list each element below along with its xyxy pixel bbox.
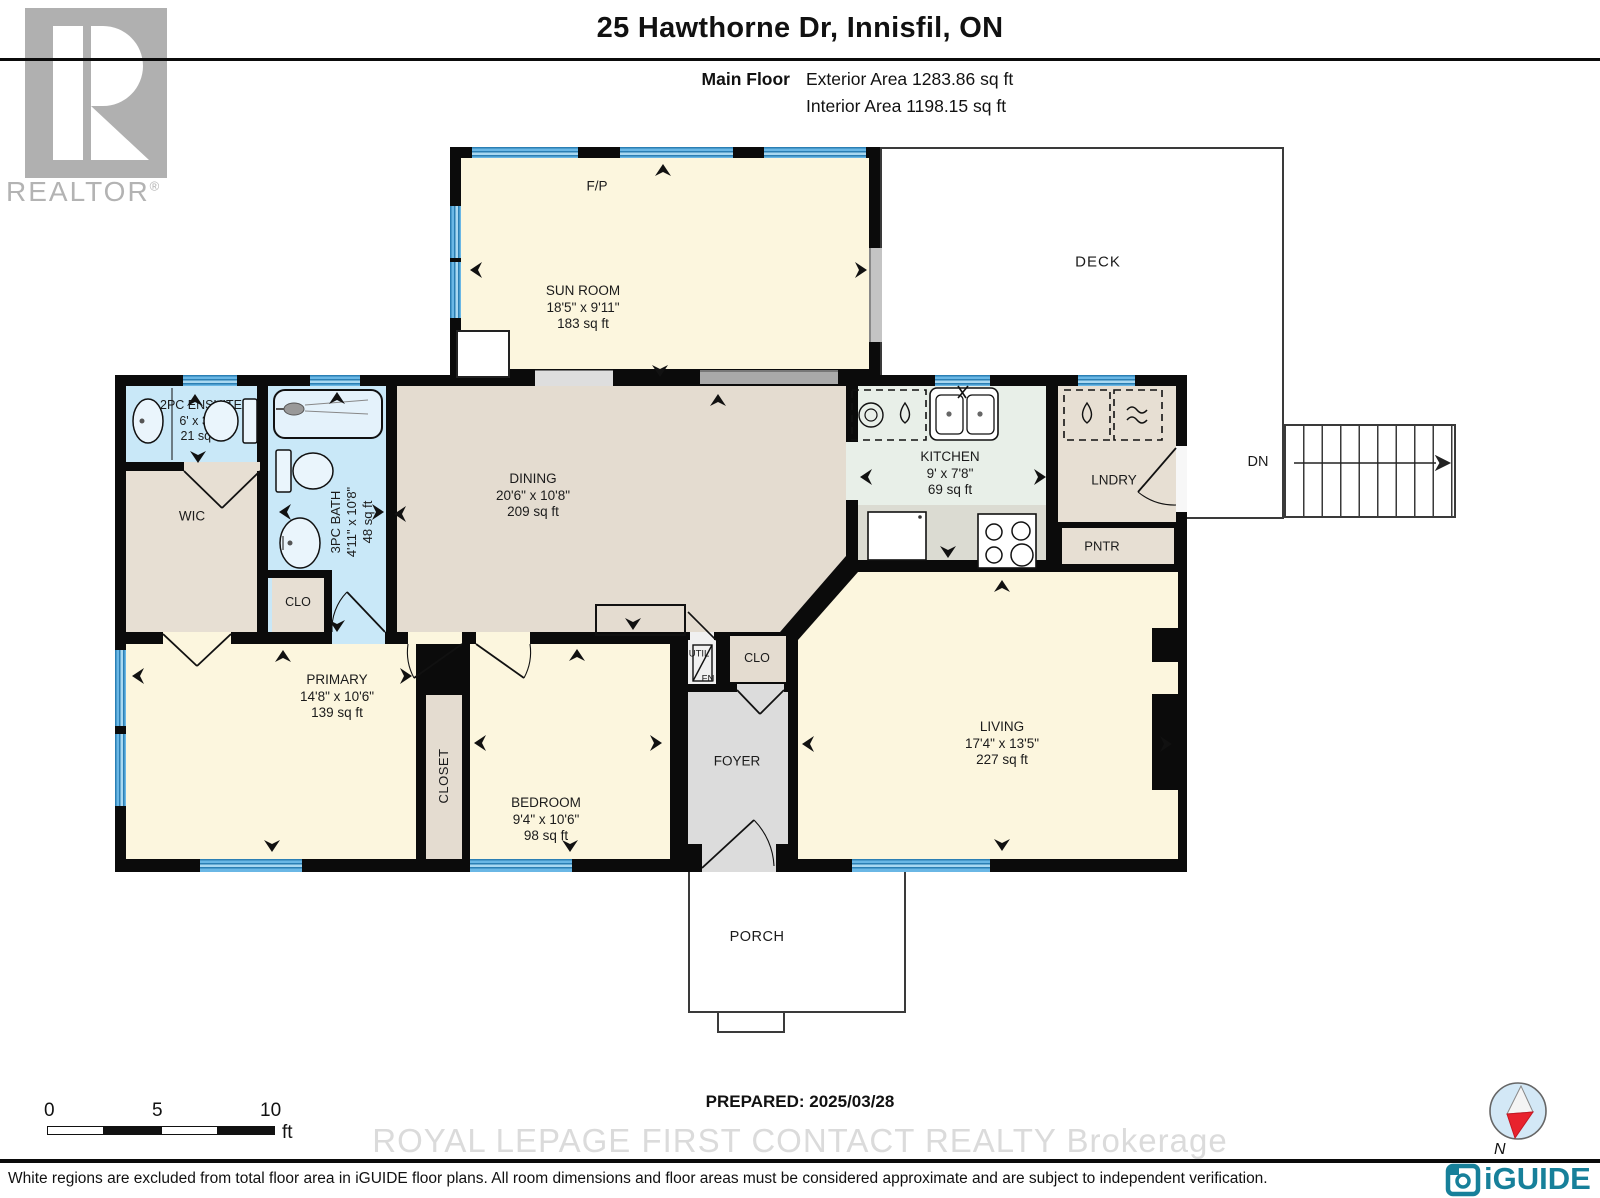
living-right-pier-2: [1152, 694, 1187, 790]
foyer-closet-label: CLO: [744, 651, 770, 665]
deck-stairs: [1284, 424, 1456, 518]
bath-closet-wall-top: [268, 570, 330, 578]
furnace-label: FN: [702, 674, 715, 685]
window-bedroom-bottom: [470, 859, 572, 872]
window-sunroom-left-2: [450, 262, 461, 318]
opening-laundry-stairs: [1176, 446, 1187, 512]
iguide-logo-text: iGUIDE: [1484, 1161, 1591, 1197]
window-bath: [310, 375, 360, 386]
scale-unit: ft: [282, 1122, 293, 1144]
kitchen-jamb-bottom: [846, 500, 858, 560]
kitchen-dims: 9' x 7'8": [920, 466, 979, 483]
dining-area: 209 sq ft: [496, 504, 570, 521]
realtor-word: REALTOR: [6, 176, 150, 207]
sunroom-area: 183 sq ft: [546, 316, 620, 333]
bedroom-dims: 9'4" x 10'6": [511, 812, 581, 829]
compass-north-label: N: [1494, 1141, 1506, 1159]
dining-dims: 20'6" x 10'8": [496, 488, 570, 505]
realtor-logo: [25, 8, 167, 178]
window-primary-left-2: [115, 734, 126, 806]
pantry-label: PNTR: [1084, 539, 1119, 554]
slider-sunroom-dining: [700, 370, 838, 384]
bath-dims: 4'11" x 10'8": [344, 487, 360, 557]
floorplan-page: { "header": { "title": "25 Hawthorne Dr,…: [0, 0, 1600, 1198]
living-right-pier-1: [1152, 628, 1187, 662]
iguide-icon: [1448, 1166, 1478, 1194]
bath-closet-wall-right: [324, 570, 332, 632]
opening-bedroom-door: [476, 632, 530, 644]
utility-label: UTIL: [689, 649, 710, 660]
slider-sunroom-deck: [869, 248, 882, 342]
prepared-date: PREPARED: 2025/03/28: [706, 1092, 895, 1112]
room-wic: [126, 471, 257, 632]
opening-foyer-closet: [737, 684, 784, 692]
porch-label: PORCH: [730, 929, 785, 945]
ensuite-name: 2PC ENSUITE: [160, 398, 242, 414]
sunroom-fireplace: [456, 330, 510, 378]
window-ensuite: [183, 375, 237, 386]
realtor-logo-text: REALTOR®: [6, 176, 186, 208]
living-area: 227 sq ft: [965, 752, 1039, 769]
page-title: 25 Hawthorne Dr, Innisfil, ON: [597, 12, 1004, 45]
window-primary-left-1: [115, 650, 126, 726]
opening-ensuite-wic: [184, 462, 260, 471]
window-kitchen: [935, 375, 990, 386]
primary-name: PRIMARY: [300, 672, 374, 689]
porch-area: [688, 860, 906, 1013]
bath-closet-label: CLO: [285, 595, 311, 609]
foyer-label: FOYER: [714, 754, 761, 769]
room-laundry: [1058, 386, 1176, 522]
sunroom-dims: 18'5" x 9'11": [546, 300, 620, 317]
bedroom-name: BEDROOM: [511, 795, 581, 812]
sunroom-label: SUN ROOM 18'5" x 9'11" 183 sq ft: [546, 283, 620, 333]
opening-primary-door: [408, 632, 462, 644]
opening-front-door: [702, 844, 776, 872]
scale-tick-5: 5: [152, 1100, 163, 1122]
primary-area: 139 sq ft: [300, 705, 374, 722]
ensuite-dims: 6' x 3'5": [160, 413, 242, 429]
scale-seg-4: [218, 1126, 275, 1135]
scale-tick-10: 10: [260, 1100, 281, 1122]
kitchen-name: KITCHEN: [920, 449, 979, 466]
primary-label: PRIMARY 14'8" x 10'6" 139 sq ft: [300, 672, 374, 722]
scale-tick-0: 0: [44, 1100, 55, 1122]
brokerage-watermark: ROYAL LEPAGE FIRST CONTACT REALTY Broker…: [372, 1122, 1227, 1160]
opening-wic-primary: [163, 632, 231, 644]
realtor-r-icon: [25, 8, 167, 178]
ensuite-area: 21 sq ft: [160, 429, 242, 445]
disclaimer-text: White regions are excluded from total fl…: [8, 1170, 1268, 1188]
window-laundry: [1078, 375, 1135, 386]
exterior-area: Exterior Area 1283.86 sq ft: [806, 69, 1013, 90]
interior-area: Interior Area 1198.15 sq ft: [806, 96, 1006, 117]
window-primary-bottom: [200, 859, 302, 872]
scale-seg-1: [47, 1126, 104, 1135]
kitchen-area: 69 sq ft: [920, 482, 979, 499]
living-dims: 17'4" x 13'5": [965, 736, 1039, 753]
window-sunroom-top-2: [620, 147, 733, 158]
primary-dims: 14'8" x 10'6": [300, 689, 374, 706]
opening-sunroom-dining: [535, 370, 613, 386]
closet-label: CLOSET: [436, 748, 452, 803]
bath-label: 3PC BATH 4'11" x 10'8" 48 sq ft: [328, 487, 376, 557]
room-living: [790, 572, 1178, 859]
dining-name: DINING: [496, 471, 570, 488]
window-living-bottom: [852, 859, 990, 872]
bedroom-area: 98 sq ft: [511, 828, 581, 845]
compass-icon: [1490, 1083, 1546, 1139]
ensuite-label: 2PC ENSUITE 6' x 3'5" 21 sq ft: [160, 398, 242, 445]
dn-label: DN: [1248, 454, 1269, 470]
realtor-reg-mark: ®: [150, 179, 162, 194]
scale-seg-3: [161, 1126, 218, 1135]
opening-utility-door: [690, 632, 714, 640]
living-label: LIVING 17'4" x 13'5" 227 sq ft: [965, 719, 1039, 769]
deck-label: DECK: [1075, 254, 1121, 271]
kitchen-label: KITCHEN 9' x 7'8" 69 sq ft: [920, 449, 979, 499]
window-sunroom-top-1: [472, 147, 578, 158]
porch-step: [717, 1011, 785, 1033]
laundry-label: LNDRY: [1091, 473, 1137, 488]
bath-area: 48 sq ft: [360, 487, 376, 557]
sunroom-name: SUN ROOM: [546, 283, 620, 300]
dining-label: DINING 20'6" x 10'8" 209 sq ft: [496, 471, 570, 521]
floor-label: Main Floor: [620, 69, 790, 90]
fp-label: F/P: [586, 179, 607, 194]
room-sunroom: [461, 158, 869, 369]
room-dining: [397, 386, 846, 632]
opening-bath-door: [332, 632, 385, 644]
scale-seg-2: [104, 1126, 161, 1135]
window-sunroom-top-3: [764, 147, 866, 158]
window-sunroom-left-1: [450, 206, 461, 258]
header-divider: [0, 58, 1600, 61]
living-name: LIVING: [965, 719, 1039, 736]
bath-name: 3PC BATH: [328, 487, 344, 557]
bedroom-label: BEDROOM 9'4" x 10'6" 98 sq ft: [511, 795, 581, 845]
wic-label: WIC: [179, 509, 205, 524]
kitchen-jamb-top: [846, 386, 858, 442]
kitchen-counter: [858, 505, 1046, 560]
dining-hall-closet-outline: [595, 604, 686, 636]
